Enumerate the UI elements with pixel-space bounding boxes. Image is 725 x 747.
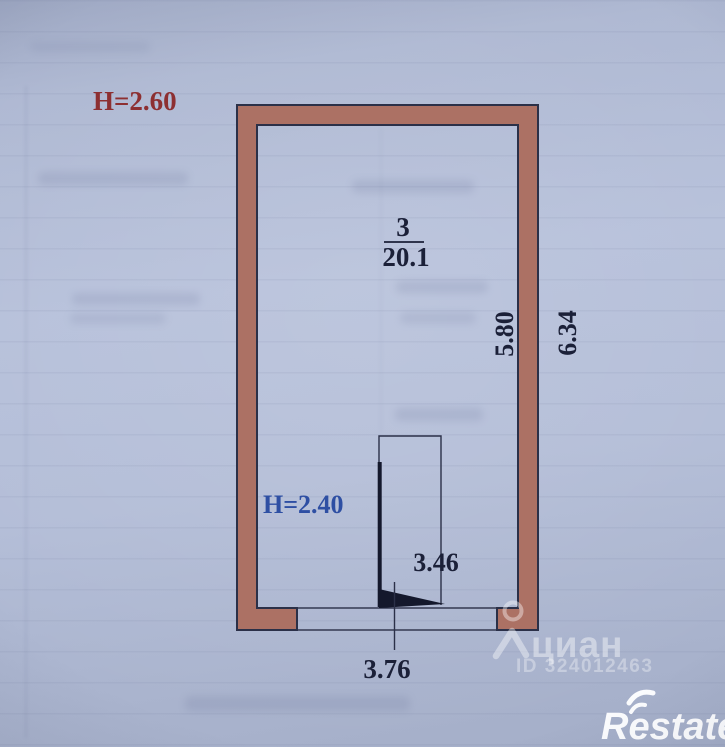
door-opening-outline (379, 436, 441, 607)
restate-logo: Restate (583, 684, 725, 747)
restate-logo-text: Restate (601, 706, 725, 747)
floorplan-photo: 3 20.1 5.80 6.34 3.46 3.76 Н=2.60 Н=2.40… (0, 0, 725, 747)
door-swing-triangle (379, 589, 445, 608)
listing-id-watermark: ID 324012463 (516, 656, 653, 678)
outer-depth-dimension: 6.34 (553, 310, 582, 356)
window-band (297, 608, 497, 630)
ceiling-height-secondary-label: Н=2.40 (263, 490, 344, 519)
inner-depth-dimension: 5.80 (490, 311, 519, 357)
bottom-width-dimension: 3.76 (363, 654, 410, 684)
ceiling-height-main-label: Н=2.60 (93, 86, 177, 116)
room-area-label: 20.1 (382, 242, 429, 272)
room-number-label: 3 (396, 212, 410, 242)
door-width-dimension: 3.46 (413, 548, 459, 577)
wall-ring (237, 105, 538, 630)
house-icon (492, 598, 530, 660)
